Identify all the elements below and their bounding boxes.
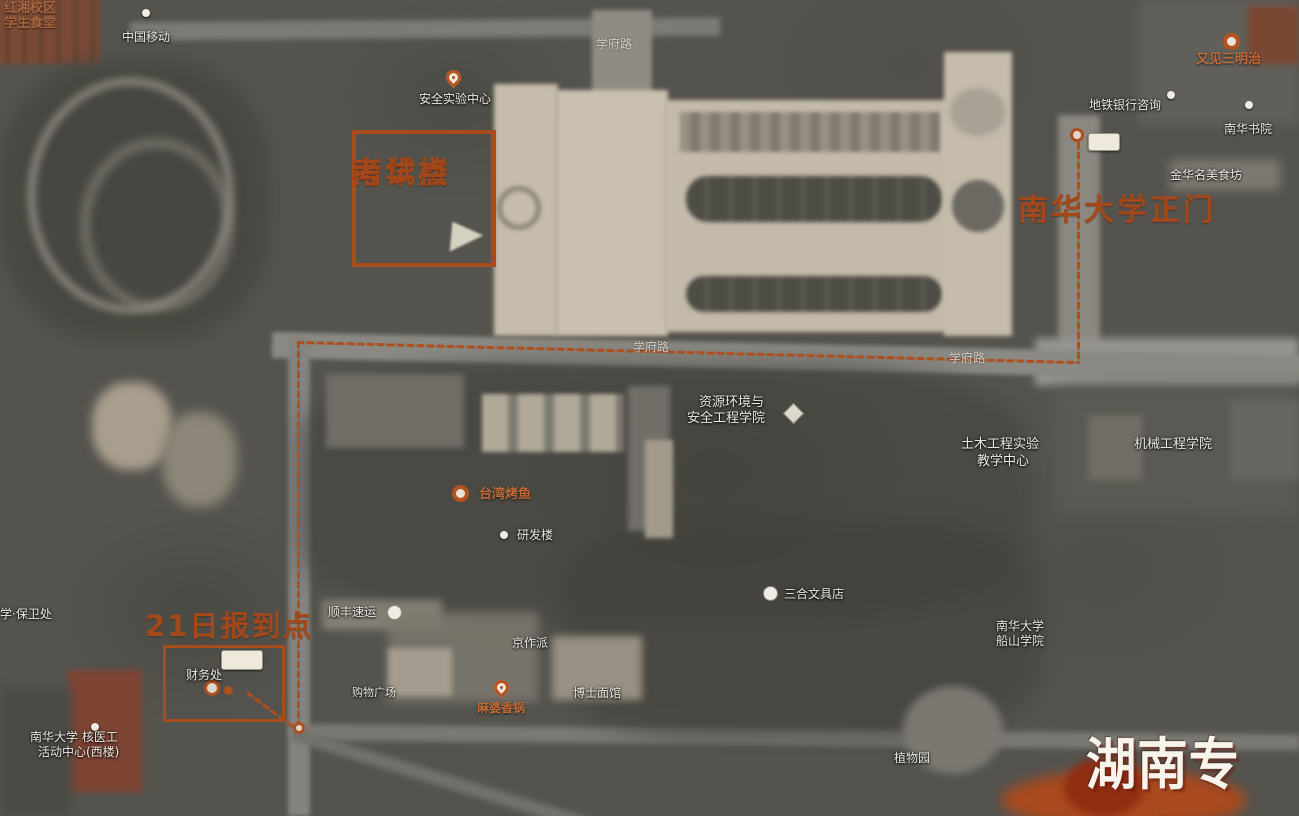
map-terrain-patch xyxy=(92,382,172,470)
map-label: 金华名美食坊 xyxy=(1170,169,1242,182)
map-label: 教学中心 xyxy=(977,455,1029,469)
map-label: 顺丰速运 xyxy=(328,606,376,619)
map-terrain-patch xyxy=(482,394,624,452)
dot-icon xyxy=(1167,91,1175,99)
map-label: 台湾烤鱼 xyxy=(479,488,531,502)
map-label: 学府路 xyxy=(949,352,985,365)
plate-icon xyxy=(221,650,263,670)
map-terrain-patch xyxy=(497,186,541,230)
map-terrain-patch xyxy=(592,10,652,98)
map-label: 南华书院 xyxy=(1224,123,1272,136)
watermark: 湖南专升本 xyxy=(1086,720,1278,816)
ring-icon xyxy=(1223,33,1240,50)
map-label: 又见三明治 xyxy=(1196,53,1261,67)
circle-icon xyxy=(387,605,402,620)
map-label: 安全工程学院 xyxy=(687,412,765,426)
circle-icon xyxy=(763,586,778,601)
map-label: 研发楼 xyxy=(517,529,553,542)
map-label: 机械工程学院 xyxy=(1134,438,1212,452)
route-end-ring xyxy=(293,722,305,734)
map-terrain-patch xyxy=(645,440,673,538)
map-label: 学府路 xyxy=(596,38,632,51)
map-terrain-patch xyxy=(556,90,668,336)
map-label: 南华大学 核医工 xyxy=(30,731,118,744)
route-segment-gate-south xyxy=(1077,142,1080,362)
map-label: 资源环境与 xyxy=(699,396,764,410)
route-start-ring xyxy=(1070,128,1084,142)
map-label: 三合文具店 xyxy=(784,588,844,601)
map-label: 土木工程实验 xyxy=(961,438,1039,452)
map-terrain-patch xyxy=(680,112,940,152)
main-gate-label: 南华大学正门 xyxy=(1018,185,1216,229)
map-terrain-patch xyxy=(1230,400,1299,480)
dot-icon xyxy=(500,531,508,539)
map-label: 学·保卫处 xyxy=(0,608,52,621)
map-label: 财务处 xyxy=(186,669,222,682)
route-segment-south xyxy=(297,341,300,729)
map-label: 中国移动 xyxy=(122,31,170,44)
map-label: 学生食堂 xyxy=(4,17,56,31)
map-terrain-patch xyxy=(326,374,464,448)
map-canvas[interactable]: 南华楼 考试点 南华大学正门 21日报到点 红湘校区学生食堂中国移动安全实验中心… xyxy=(0,0,1299,816)
map-terrain-patch xyxy=(952,180,1004,232)
map-terrain-patch xyxy=(82,140,232,310)
map-label: 植物园 xyxy=(894,752,930,765)
map-terrain-patch xyxy=(686,176,942,222)
map-label: 船山学院 xyxy=(996,635,1044,648)
map-label: 学府路 xyxy=(633,341,669,354)
map-terrain-patch xyxy=(388,648,452,696)
map-terrain-patch xyxy=(686,276,942,312)
dot-icon xyxy=(142,9,150,17)
map-terrain-patch xyxy=(950,88,1006,136)
ring-icon xyxy=(452,485,469,502)
map-terrain-patch xyxy=(162,412,237,507)
exam-site-label-line2: 考试点 xyxy=(352,150,451,197)
map-label: 红湘校区 xyxy=(4,2,56,16)
map-label: 活动中心(西楼) xyxy=(38,746,119,759)
dot-icon xyxy=(1245,101,1253,109)
pin-icon xyxy=(443,67,464,88)
map-label: 购物广场 xyxy=(352,687,396,699)
map-label: 安全实验中心 xyxy=(419,93,491,106)
map-label: 京作派 xyxy=(512,637,548,650)
report-point-label: 21日报到点 xyxy=(145,603,313,645)
map-label: 博士面馆 xyxy=(573,687,621,700)
map-label: 麻婆香锅 xyxy=(477,702,525,715)
map-label: 南华大学 xyxy=(996,620,1044,633)
plate-icon xyxy=(1088,133,1120,151)
map-label: 地铁银行咨询 xyxy=(1089,99,1161,112)
